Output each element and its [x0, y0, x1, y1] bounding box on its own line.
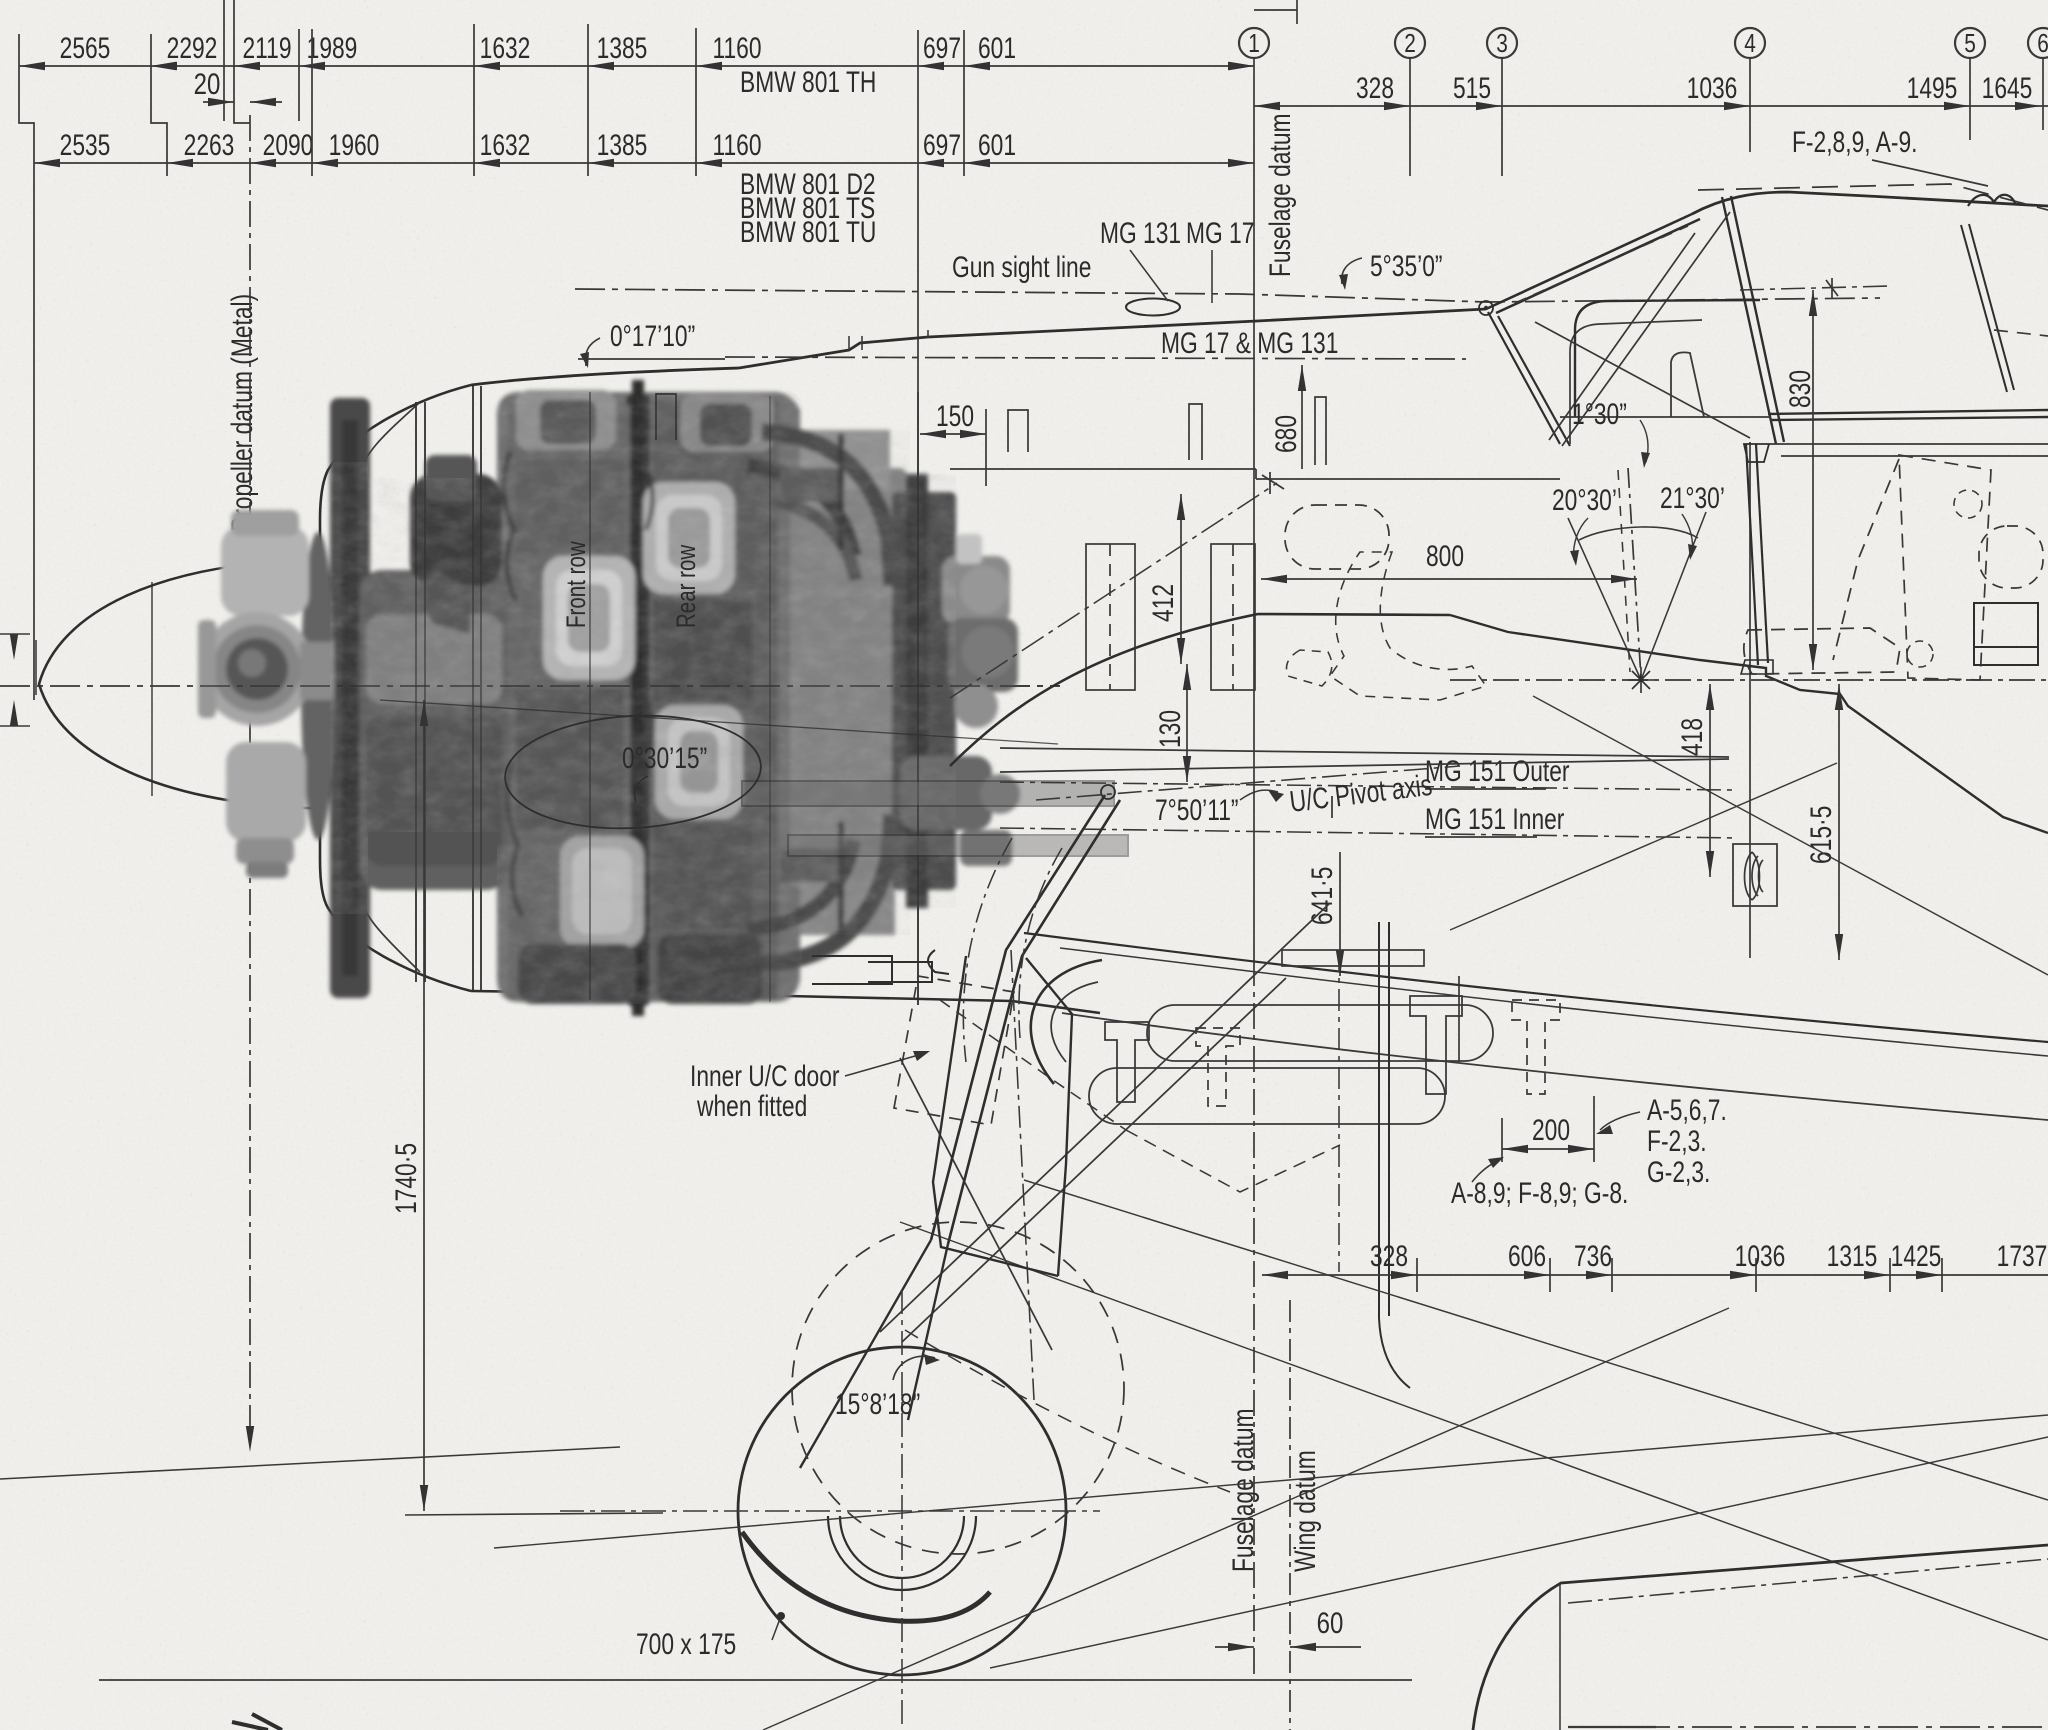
- svg-text:15°8’18”: 15°8’18”: [835, 1388, 920, 1421]
- svg-text:328: 328: [1356, 72, 1394, 105]
- svg-text:1: 1: [1248, 28, 1260, 58]
- svg-text:680: 680: [1270, 415, 1303, 453]
- svg-text:F-2,8,9, A-9.: F-2,8,9, A-9.: [1792, 126, 1918, 159]
- svg-text:Propeller datum (Metal): Propeller datum (Metal): [226, 294, 259, 532]
- svg-text:1632: 1632: [480, 129, 531, 162]
- svg-text:MG 17 & MG 131: MG 17 & MG 131: [1161, 327, 1338, 360]
- svg-text:418: 418: [1676, 718, 1709, 756]
- svg-text:Front row: Front row: [561, 541, 591, 628]
- svg-text:5: 5: [1964, 28, 1976, 58]
- svg-text:700 x 175: 700 x 175: [636, 1628, 736, 1661]
- svg-text:515: 515: [1453, 72, 1491, 105]
- svg-text:Inner U/C door: Inner U/C door: [690, 1060, 840, 1093]
- svg-text:7°50’11”: 7°50’11”: [1155, 794, 1239, 827]
- svg-text:2090: 2090: [263, 129, 314, 162]
- svg-text:130: 130: [1154, 710, 1187, 748]
- svg-text:1160: 1160: [713, 129, 762, 162]
- svg-text:1645: 1645: [1982, 72, 2033, 105]
- svg-text:3: 3: [1496, 28, 1508, 58]
- svg-text:Fuselage datum: Fuselage datum: [1264, 114, 1297, 278]
- svg-text:BMW 801 TH: BMW 801 TH: [740, 66, 876, 99]
- svg-text:0°30’15”: 0°30’15”: [622, 742, 707, 775]
- svg-text:601: 601: [978, 129, 1016, 162]
- svg-text:697: 697: [923, 129, 961, 162]
- svg-text:697: 697: [923, 32, 961, 65]
- svg-text:BMW 801 TU: BMW 801 TU: [740, 216, 876, 249]
- svg-text:2: 2: [1404, 28, 1416, 58]
- svg-text:1425: 1425: [1891, 1240, 1942, 1273]
- svg-text:6: 6: [2037, 28, 2048, 58]
- svg-text:1036: 1036: [1687, 72, 1738, 105]
- svg-text:MG 151 Outer: MG 151 Outer: [1425, 755, 1570, 788]
- svg-text:A-5,6,7.: A-5,6,7.: [1647, 1094, 1727, 1127]
- svg-text:1495: 1495: [1907, 72, 1958, 105]
- svg-text:736: 736: [1574, 1240, 1612, 1273]
- svg-text:20°30’: 20°30’: [1552, 484, 1617, 517]
- svg-text:when fitted: when fitted: [696, 1090, 807, 1123]
- svg-text:1315: 1315: [1827, 1240, 1878, 1273]
- svg-text:Rear row: Rear row: [671, 544, 701, 628]
- svg-text:MG 131: MG 131: [1100, 217, 1181, 250]
- svg-text:G-2,3.: G-2,3.: [1647, 1156, 1710, 1189]
- svg-text:0°17’10”: 0°17’10”: [610, 320, 695, 353]
- svg-text:1737: 1737: [1997, 1240, 2048, 1273]
- svg-text:2263: 2263: [184, 129, 235, 162]
- svg-text:MG 17: MG 17: [1186, 217, 1254, 250]
- svg-text:1°30”: 1°30”: [1572, 398, 1627, 431]
- svg-text:2292: 2292: [167, 32, 218, 65]
- svg-text:1740·5: 1740·5: [390, 1143, 423, 1214]
- svg-text:2535: 2535: [60, 129, 111, 162]
- svg-text:F-2,3.: F-2,3.: [1647, 1125, 1707, 1158]
- svg-text:830: 830: [1784, 370, 1817, 408]
- svg-text:1036: 1036: [1735, 1240, 1786, 1273]
- svg-text:20: 20: [194, 68, 221, 101]
- svg-text:150: 150: [936, 400, 974, 433]
- svg-text:5°35’0”: 5°35’0”: [1370, 250, 1443, 283]
- svg-text:601: 601: [978, 32, 1016, 65]
- svg-text:1989: 1989: [307, 32, 358, 65]
- svg-text:412: 412: [1147, 584, 1180, 622]
- svg-text:60: 60: [1317, 1607, 1344, 1640]
- svg-text:1960: 1960: [329, 129, 380, 162]
- svg-text:328: 328: [1370, 1240, 1408, 1273]
- svg-text:606: 606: [1508, 1240, 1546, 1273]
- svg-text:1160: 1160: [713, 32, 762, 65]
- svg-text:Gun sight line: Gun sight line: [952, 251, 1091, 284]
- svg-text:800: 800: [1426, 540, 1464, 573]
- svg-text:21°30’: 21°30’: [1660, 482, 1725, 515]
- svg-text:2565: 2565: [60, 32, 111, 65]
- svg-text:200: 200: [1532, 1114, 1570, 1147]
- svg-text:MG 151 Inner: MG 151 Inner: [1425, 803, 1564, 836]
- svg-text:A-8,9; F-8,9; G-8.: A-8,9; F-8,9; G-8.: [1451, 1177, 1628, 1210]
- svg-text:1385: 1385: [597, 32, 648, 65]
- svg-text:Wing datum: Wing datum: [1289, 1450, 1322, 1572]
- svg-text:615·5: 615·5: [1805, 806, 1838, 864]
- svg-text:641·5: 641·5: [1306, 867, 1339, 925]
- svg-text:4: 4: [1744, 28, 1756, 58]
- svg-text:Fuselage datum: Fuselage datum: [1227, 1409, 1260, 1573]
- svg-text:1385: 1385: [597, 129, 648, 162]
- svg-text:1632: 1632: [480, 32, 531, 65]
- svg-text:2119: 2119: [243, 32, 292, 65]
